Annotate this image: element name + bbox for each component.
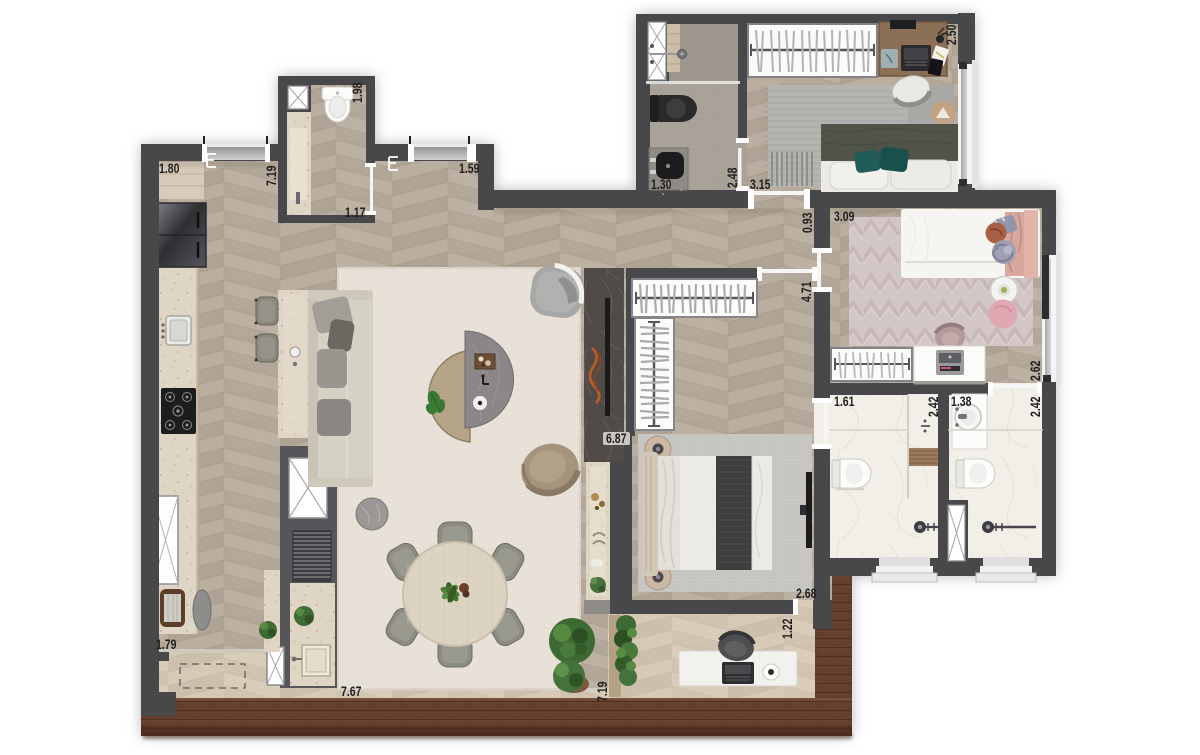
svg-text:3.09: 3.09: [834, 209, 855, 225]
svg-text:4.71: 4.71: [799, 281, 815, 302]
svg-text:7.19: 7.19: [595, 681, 611, 702]
svg-text:2.48: 2.48: [725, 167, 741, 188]
svg-text:6.87: 6.87: [606, 431, 627, 447]
svg-text:1.80: 1.80: [159, 161, 180, 177]
svg-text:1.22: 1.22: [780, 618, 796, 639]
svg-text:2.62: 2.62: [1028, 360, 1044, 381]
svg-text:3.15: 3.15: [750, 177, 771, 193]
svg-text:1.59: 1.59: [459, 161, 480, 177]
svg-text:1.98: 1.98: [350, 82, 366, 103]
svg-text:7.19: 7.19: [264, 165, 280, 186]
svg-text:1.61: 1.61: [834, 394, 855, 410]
svg-text:2.42: 2.42: [926, 396, 942, 417]
svg-text:1.30: 1.30: [651, 177, 672, 193]
svg-text:1.17: 1.17: [345, 205, 366, 221]
svg-text:2.68: 2.68: [796, 586, 817, 602]
svg-text:2.50: 2.50: [944, 24, 960, 45]
svg-text:7.67: 7.67: [341, 684, 362, 700]
svg-text:1.79: 1.79: [156, 637, 177, 653]
svg-text:0.93: 0.93: [800, 212, 816, 233]
svg-text:1.38: 1.38: [951, 394, 972, 410]
svg-text:2.42: 2.42: [1028, 396, 1044, 417]
